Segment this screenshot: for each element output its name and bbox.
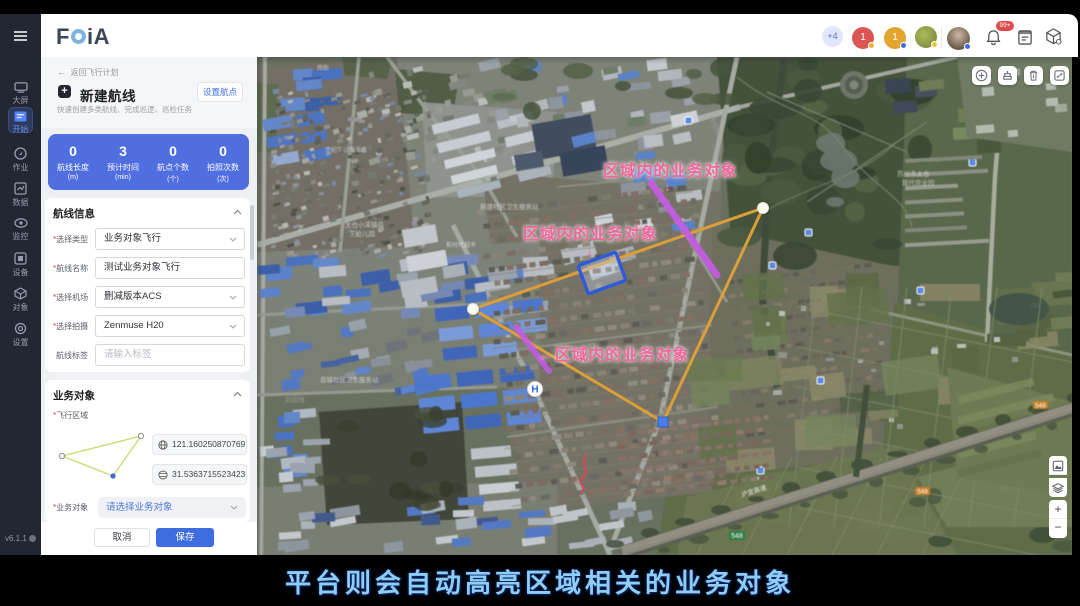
svg-text:H: H (531, 385, 538, 396)
